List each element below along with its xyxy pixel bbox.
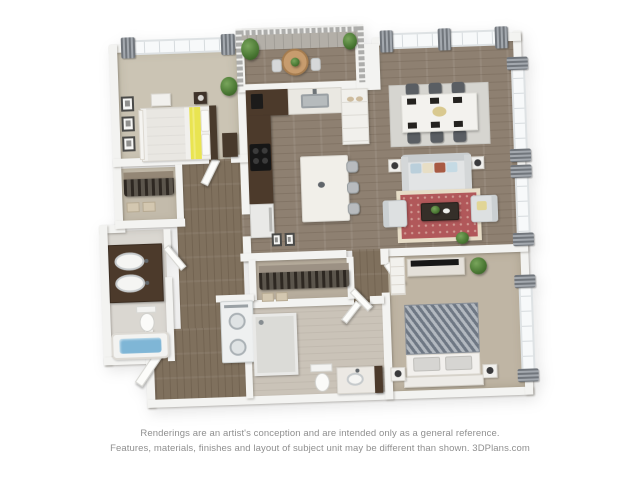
bedroom1-dresser [222, 133, 238, 158]
bathroom2-faucet [355, 369, 359, 373]
kitchen-pantry-cabinet [341, 88, 370, 145]
dining-right-curtain-top [507, 56, 528, 70]
disclaimer: Renderings are an artist's conception an… [0, 427, 640, 456]
placemat-2 [430, 98, 439, 104]
island-stool-1 [346, 160, 358, 172]
dining-curtain-right [495, 26, 509, 48]
bedroom2-curtain-top [514, 274, 535, 288]
bedroom2-shelf-unit [389, 257, 405, 296]
placemat-3 [453, 97, 462, 103]
bedroom1-wall-art-3 [122, 136, 136, 151]
dining-curtain-mid [438, 28, 452, 50]
living-coffee-table [421, 202, 460, 221]
bedroom2-pillow-1 [413, 357, 440, 372]
hall-leaning-art-1 [272, 233, 282, 246]
dining-chair-bottom-1 [407, 131, 420, 143]
bathroom2-vanity-dark-side [374, 366, 383, 393]
floor-plan-rendering [93, 19, 538, 414]
disclaimer-line1: Renderings are an artist's conception an… [0, 427, 640, 442]
kitchen-cooktop [249, 144, 271, 172]
dining-chair-bottom-2 [430, 130, 443, 142]
bedroom2-window [518, 278, 535, 376]
walkin-box-1 [262, 292, 274, 301]
great-room-wood-floor [236, 41, 525, 255]
placemat-6 [454, 121, 463, 127]
balcony-chair-left [272, 59, 282, 72]
dining-right-curtain-bottom [510, 148, 531, 162]
walkin-hanging-clothes [259, 270, 350, 290]
living-curtain-bottom [513, 232, 534, 246]
bedroom1-wall-art-1 [121, 96, 135, 111]
placemat-5 [431, 122, 440, 128]
closet1-box-1 [126, 202, 139, 212]
hall-leaning-art-2 [285, 233, 295, 246]
kitchen-sink [301, 93, 329, 108]
bedroom2-curtain-bottom [517, 368, 538, 382]
armchair-right-pillow [477, 201, 487, 210]
kitchen-faucet [313, 89, 317, 94]
balcony-railing-right [357, 24, 365, 82]
sofa-pillow-cream [422, 163, 433, 173]
walkin-box-2 [276, 292, 288, 301]
bedroom2-pillow-2 [445, 356, 472, 371]
bedroom1-curtain-right [221, 34, 236, 55]
bathroom1-faucet-1 [144, 259, 148, 263]
bedroom1-duvet [146, 108, 186, 161]
armchair-left-back [383, 200, 390, 227]
disclaimer-line2: Features, materials, finishes and layout… [0, 442, 640, 457]
kitchen-coffee-maker [251, 94, 264, 109]
screenshot-root: Renderings are an artist's conception an… [0, 0, 640, 480]
kitchen-island [300, 155, 350, 223]
sofa-pillow-blue-2 [446, 162, 457, 172]
sofa-pillow-rust [434, 162, 445, 172]
dining-window-right [511, 61, 528, 157]
bedroom1-curtain-left [121, 37, 136, 58]
wall-bath2-top-east [370, 296, 384, 304]
balcony-chair-right [310, 58, 320, 71]
bedroom1-ottoman [151, 93, 171, 107]
sofa-pillow-blue-1 [410, 163, 421, 173]
placemat-1 [407, 98, 416, 104]
island-stool-2 [347, 181, 359, 193]
dining-curtain-left [380, 30, 394, 52]
wall-closet1-bottom [115, 219, 185, 229]
closet1-box-2 [142, 202, 155, 212]
living-curtain-top [510, 164, 531, 178]
closet1-hanging-clothes [124, 178, 175, 197]
island-stool-3 [348, 202, 360, 214]
bedroom1-wall-art-2 [121, 116, 135, 131]
dining-chair-bottom-3 [453, 130, 466, 142]
placemat-4 [408, 122, 417, 128]
bathroom1-tub-water [119, 337, 161, 353]
bathroom2-toilet-tank [310, 363, 332, 372]
bedroom2-striped-duvet [404, 302, 480, 355]
armchair-right-back [491, 195, 498, 222]
living-window-right [514, 169, 531, 241]
